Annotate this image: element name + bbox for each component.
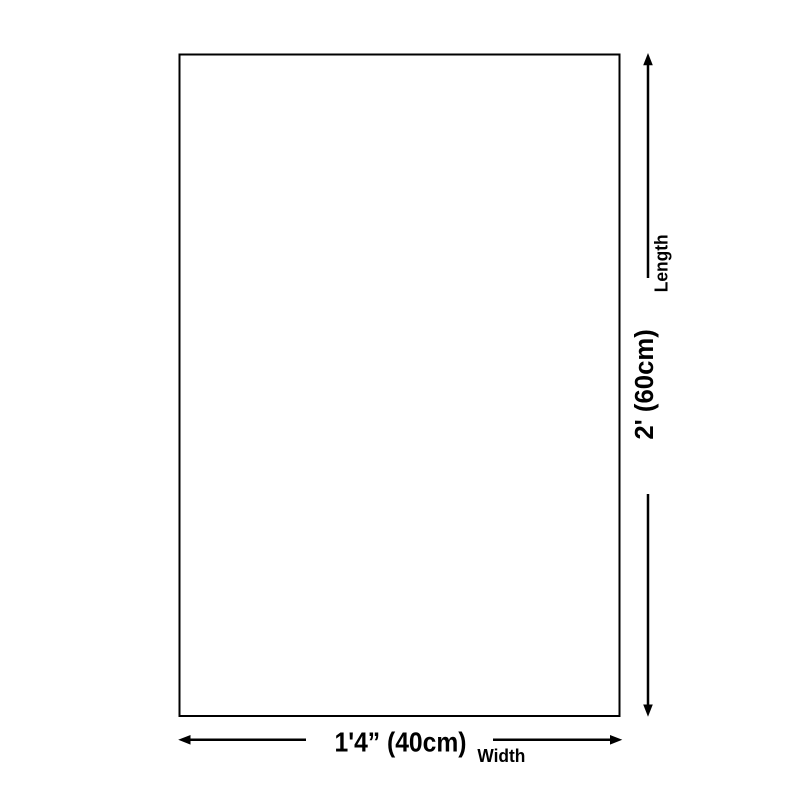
- svg-text:Length: Length: [652, 234, 672, 292]
- svg-text:2' (60cm): 2' (60cm): [631, 329, 659, 440]
- svg-text:1'4” (40cm): 1'4” (40cm): [335, 727, 467, 758]
- svg-text:Width: Width: [477, 746, 525, 766]
